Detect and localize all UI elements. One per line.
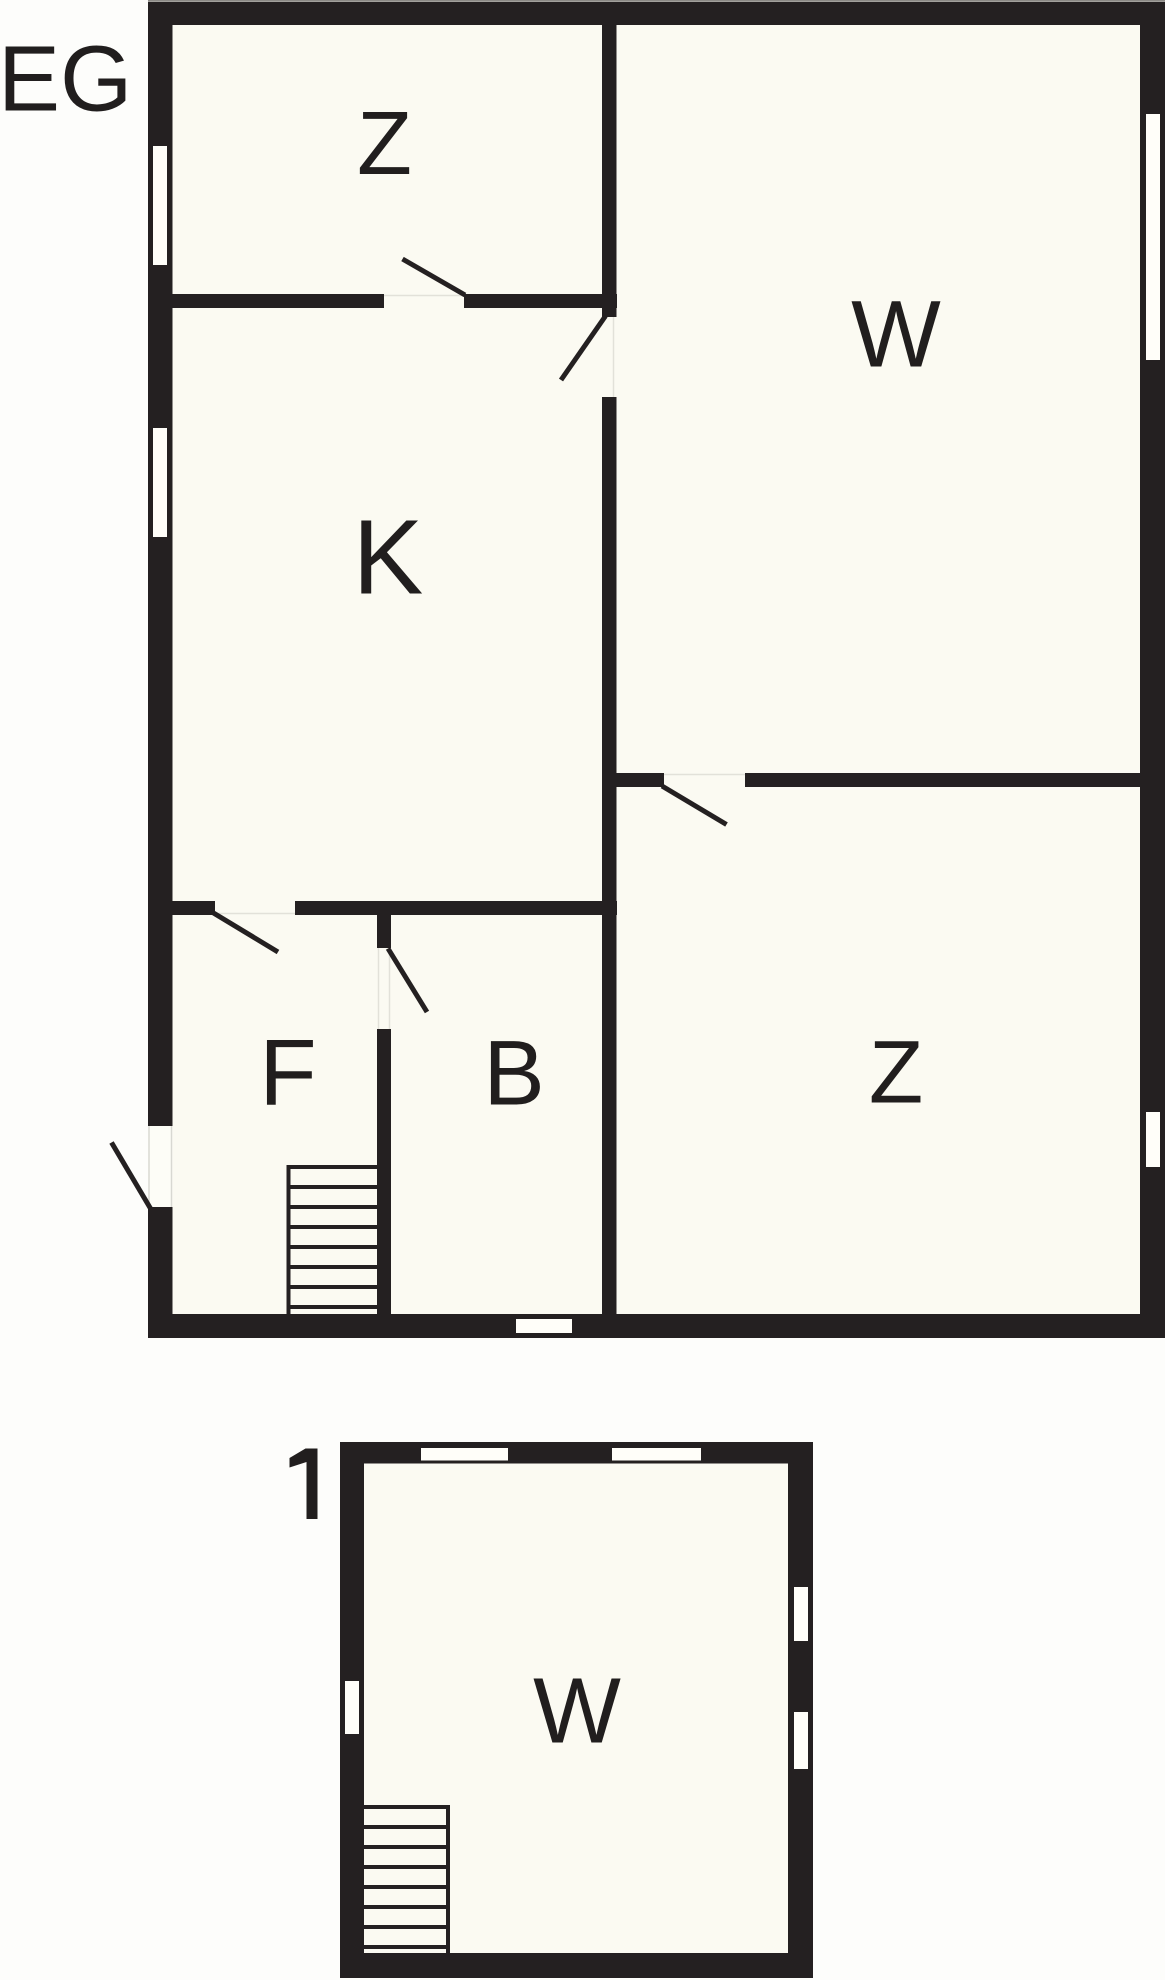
svg-text:B: B	[483, 1023, 544, 1125]
svg-text:F: F	[259, 1020, 316, 1125]
svg-text:W: W	[533, 1659, 621, 1763]
svg-text:Z: Z	[869, 1022, 923, 1122]
svg-text:Z: Z	[357, 94, 412, 194]
svg-text:K: K	[353, 499, 424, 617]
svg-text:EG: EG	[0, 27, 132, 131]
svg-text:W: W	[851, 282, 941, 388]
